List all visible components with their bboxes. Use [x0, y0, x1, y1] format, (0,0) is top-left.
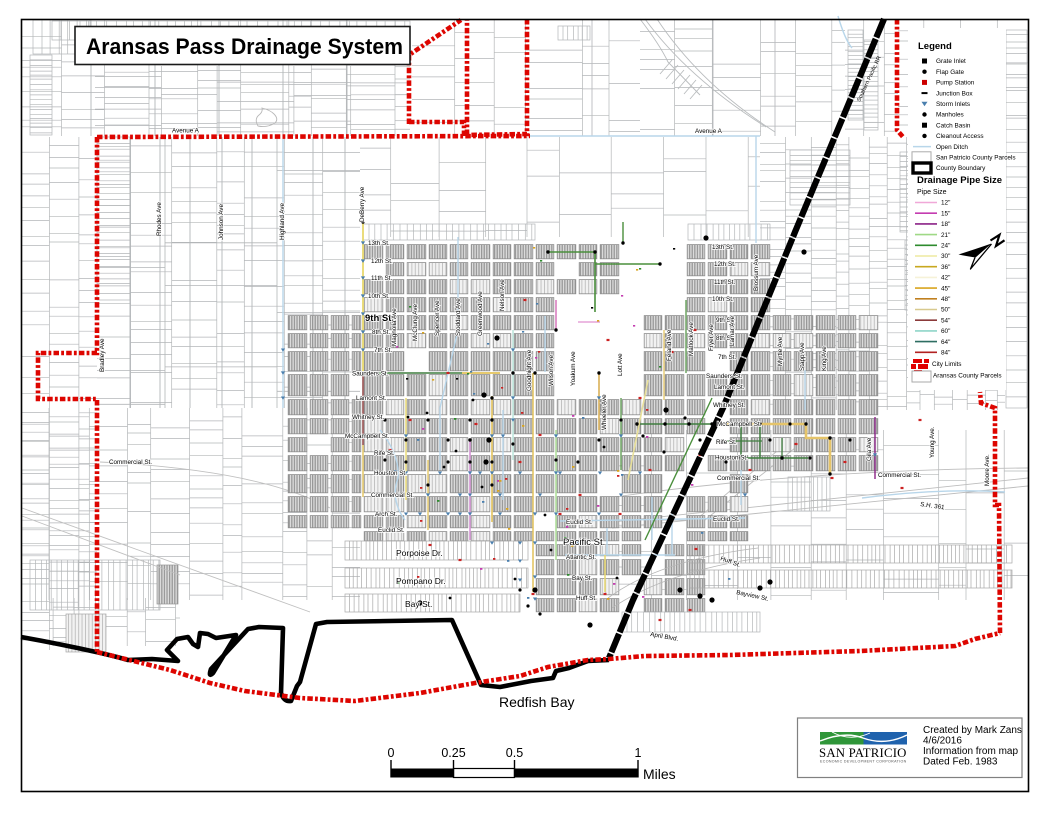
svg-text:Euclid St.: Euclid St.	[566, 519, 593, 526]
svg-text:Stapp Ave: Stapp Ave	[799, 342, 806, 371]
svg-text:0: 0	[388, 746, 395, 760]
svg-text:21": 21"	[941, 232, 950, 239]
svg-text:Young Ave.: Young Ave.	[929, 426, 936, 458]
svg-text:Magnolia Ave: Magnolia Ave	[391, 308, 398, 346]
svg-text:Gila Ave: Gila Ave	[866, 437, 873, 461]
svg-text:Manholes: Manholes	[936, 112, 964, 119]
svg-text:1: 1	[635, 746, 642, 760]
svg-text:Storm Inlets: Storm Inlets	[936, 101, 970, 108]
svg-text:Spencer Ave: Spencer Ave	[434, 300, 441, 336]
svg-text:48": 48"	[941, 296, 950, 303]
svg-text:Euclid St.: Euclid St.	[378, 527, 405, 534]
svg-text:DeBerry Ave: DeBerry Ave	[359, 186, 366, 222]
svg-text:Open Ditch: Open Ditch	[936, 144, 968, 151]
svg-text:12": 12"	[941, 200, 950, 207]
svg-text:Matlock Ave: Matlock Ave	[688, 322, 695, 356]
svg-text:42": 42"	[941, 275, 950, 282]
svg-text:SAN PATRICIO: SAN PATRICIO	[819, 746, 907, 760]
svg-text:4/6/2016: 4/6/2016	[923, 736, 962, 747]
svg-text:Lott Ave: Lott Ave	[617, 353, 624, 376]
svg-text:Bradley Ave: Bradley Ave	[99, 338, 106, 372]
svg-text:Stoddard Ave: Stoddard Ave	[455, 298, 462, 336]
svg-text:Information from map: Information from map	[923, 746, 1018, 757]
svg-text:30": 30"	[941, 253, 950, 260]
svg-text:0.25: 0.25	[441, 746, 465, 760]
svg-text:Moore Ave.: Moore Ave.	[984, 454, 991, 486]
svg-text:18": 18"	[941, 221, 950, 228]
svg-text:Blossum Ave: Blossum Ave	[753, 254, 760, 291]
svg-text:Rife St.: Rife St.	[716, 439, 737, 446]
svg-text:0.5: 0.5	[506, 746, 523, 760]
svg-text:Dated Feb. 1983: Dated Feb. 1983	[923, 757, 998, 768]
svg-text:McClung Ave: McClung Ave	[412, 304, 419, 341]
svg-text:7th St.: 7th St.	[718, 354, 736, 361]
svg-text:Commercial St.: Commercial St.	[717, 475, 760, 482]
svg-text:Lamar Ave: Lamar Ave	[729, 316, 736, 346]
svg-text:8th St.: 8th St.	[372, 329, 390, 336]
svg-text:McCampbell St.: McCampbell St.	[717, 421, 762, 428]
svg-text:64": 64"	[941, 339, 950, 346]
svg-text:King Ave: King Ave	[821, 346, 828, 371]
svg-text:Avenue A: Avenue A	[172, 128, 200, 135]
svg-text:Commercial St.: Commercial St.	[878, 472, 921, 479]
svg-text:Highland Ave: Highland Ave	[279, 203, 286, 240]
svg-text:Wilson Ave: Wilson Ave	[548, 354, 555, 386]
svg-text:11th St.: 11th St.	[714, 279, 735, 286]
svg-text:Cleanout Access: Cleanout Access	[936, 133, 984, 140]
svg-text:Pump Station: Pump Station	[936, 80, 975, 87]
svg-text:54": 54"	[941, 317, 950, 324]
svg-text:Euclid St.: Euclid St.	[713, 516, 740, 523]
svg-text:12th St.: 12th St.	[371, 258, 393, 265]
svg-text:Saunders St.: Saunders St.	[706, 373, 743, 380]
svg-text:45": 45"	[941, 285, 950, 292]
svg-text:Bay St.: Bay St.	[572, 575, 593, 582]
svg-text:Pacific St.: Pacific St.	[563, 537, 605, 548]
svg-text:Lamont St.: Lamont St.	[356, 395, 387, 402]
svg-text:50": 50"	[941, 307, 950, 314]
svg-text:10th St.: 10th St.	[712, 296, 734, 303]
svg-text:County Boundary: County Boundary	[936, 165, 986, 172]
svg-text:Pompano Dr.: Pompano Dr.	[396, 576, 446, 586]
svg-text:24": 24"	[941, 243, 950, 250]
svg-text:13th St.: 13th St.	[712, 244, 734, 251]
svg-text:Commercial St.: Commercial St.	[109, 459, 152, 466]
svg-text:60": 60"	[941, 328, 950, 335]
svg-text:9th St.: 9th St.	[365, 313, 394, 324]
svg-text:10th St.: 10th St.	[368, 293, 390, 300]
svg-text:Goodnight Ave: Goodnight Ave	[526, 349, 533, 391]
svg-text:Saunders St.: Saunders St.	[352, 371, 389, 378]
svg-text:Avenue A: Avenue A	[695, 128, 723, 135]
svg-text:Whitney St.: Whitney St.	[713, 402, 745, 409]
svg-text:Whitney St.: Whitney St.	[352, 414, 384, 421]
svg-text:San Patricio County Parcels: San Patricio County Parcels	[936, 155, 1016, 162]
svg-text:Rife St.: Rife St.	[374, 450, 395, 457]
svg-text:Greenwood Ave: Greenwood Ave	[477, 291, 484, 336]
svg-text:Huff St.: Huff St.	[576, 595, 597, 602]
svg-text:Grate Inlet: Grate Inlet	[936, 58, 966, 65]
svg-text:Aransas County Parcels: Aransas County Parcels	[933, 373, 1002, 380]
svg-text:Lamont St.: Lamont St.	[714, 384, 745, 391]
svg-text:Feland Ave: Feland Ave	[666, 329, 673, 361]
svg-text:Atlantic St.: Atlantic St.	[566, 554, 596, 561]
svg-text:Catch Basin: Catch Basin	[936, 122, 971, 129]
svg-text:12th St.: 12th St.	[714, 261, 736, 268]
svg-text:Miles: Miles	[643, 766, 676, 782]
svg-text:Flap Gate: Flap Gate	[936, 69, 965, 76]
svg-text:ECONOMIC DEVELOPMENT CORPORATI: ECONOMIC DEVELOPMENT CORPORATION	[820, 760, 907, 764]
svg-text:Houston St.: Houston St.	[374, 470, 407, 477]
svg-text:11th St.: 11th St.	[371, 275, 392, 282]
svg-text:Myrtle Ave: Myrtle Ave	[777, 336, 784, 366]
svg-text:Porpoise Dr.: Porpoise Dr.	[396, 548, 443, 558]
svg-text:7th St.: 7th St.	[374, 347, 392, 354]
svg-text:Bay St.: Bay St.	[405, 599, 432, 609]
svg-text:McCampbell St.: McCampbell St.	[345, 433, 390, 440]
svg-text:Fryer Ave: Fryer Ave	[708, 324, 715, 351]
svg-text:Drainage Pipe Size: Drainage Pipe Size	[917, 175, 1002, 186]
svg-text:Pipe Size: Pipe Size	[917, 189, 947, 196]
svg-text:City Limits: City Limits	[932, 361, 961, 368]
svg-text:Junction Box: Junction Box	[936, 90, 973, 97]
svg-text:Legend: Legend	[918, 41, 952, 52]
svg-text:13th St.: 13th St.	[368, 240, 390, 247]
svg-text:Wheeler Ave: Wheeler Ave	[601, 394, 608, 430]
svg-text:15": 15"	[941, 210, 950, 217]
svg-text:Aransas Pass Drainage System: Aransas Pass Drainage System	[86, 34, 403, 59]
svg-text:Commercial St.: Commercial St.	[371, 492, 414, 499]
svg-text:Houston St.: Houston St.	[715, 455, 748, 462]
svg-text:Rhodes Ave: Rhodes Ave	[156, 202, 163, 236]
svg-text:Nelson Ave: Nelson Ave	[499, 279, 506, 311]
svg-text:Arch St.: Arch St.	[375, 511, 398, 518]
svg-text:84": 84"	[941, 350, 950, 357]
svg-text:Redfish Bay: Redfish Bay	[499, 694, 574, 710]
svg-text:Created by Mark Zans: Created by Mark Zans	[923, 725, 1022, 736]
svg-text:36": 36"	[941, 264, 950, 271]
svg-text:Yoakum Ave: Yoakum Ave	[570, 351, 577, 386]
svg-text:Johnson Ave: Johnson Ave	[218, 204, 225, 240]
